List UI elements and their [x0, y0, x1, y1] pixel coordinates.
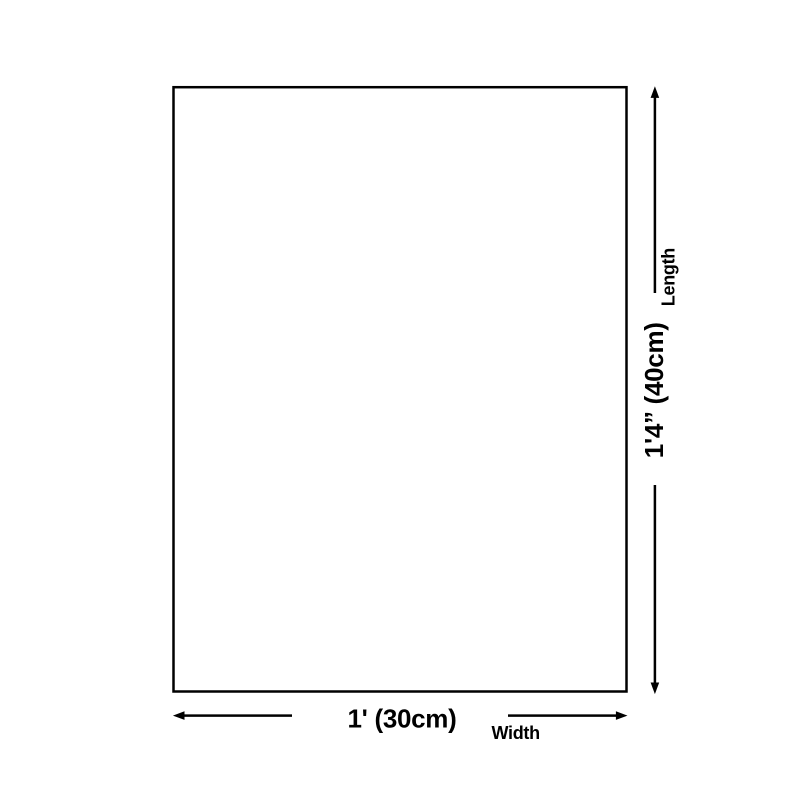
svg-text:1'4” (40cm): 1'4” (40cm) [639, 322, 669, 458]
svg-text:Length: Length [659, 248, 679, 306]
svg-text:1' (30cm): 1' (30cm) [348, 704, 457, 734]
svg-text:Width: Width [492, 723, 540, 743]
